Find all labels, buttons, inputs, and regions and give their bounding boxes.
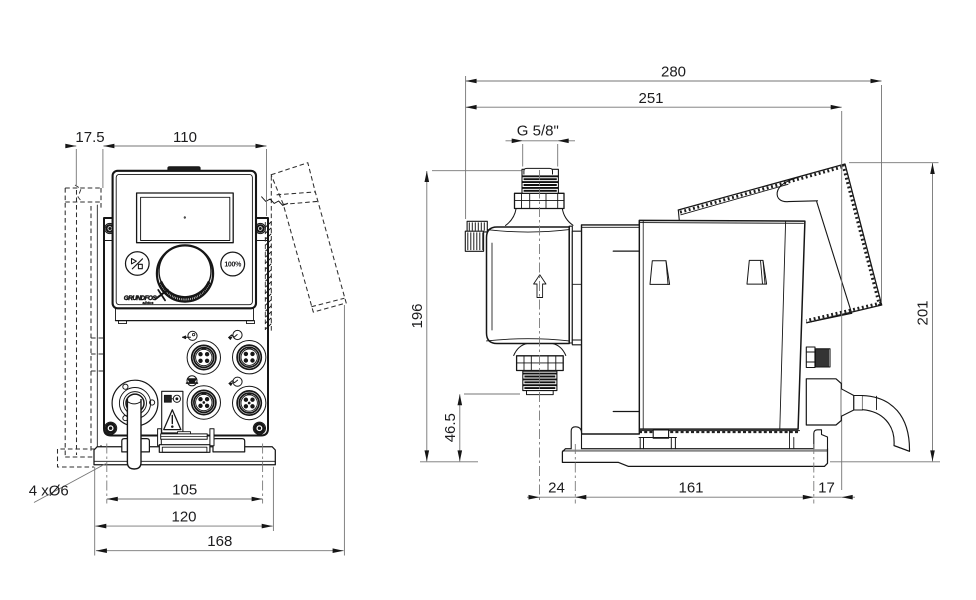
svg-text:105: 105	[172, 481, 197, 498]
svg-text:17: 17	[818, 479, 835, 496]
svg-text:251: 251	[638, 90, 663, 107]
svg-text:17.5: 17.5	[75, 129, 104, 146]
svg-text:24: 24	[548, 479, 565, 496]
svg-text:G 5/8": G 5/8"	[517, 122, 559, 139]
svg-text:110: 110	[173, 129, 197, 146]
svg-text:168: 168	[207, 533, 232, 550]
svg-text:201: 201	[915, 300, 932, 325]
svg-text:alldos: alldos	[143, 301, 154, 305]
svg-text:46.5: 46.5	[442, 413, 459, 442]
svg-text:120: 120	[171, 508, 196, 525]
svg-text:161: 161	[678, 479, 703, 496]
svg-text:196: 196	[409, 303, 426, 328]
svg-text:280: 280	[661, 64, 686, 81]
svg-text:4 xØ6: 4 xØ6	[29, 482, 69, 499]
svg-text:100%: 100%	[224, 262, 242, 269]
